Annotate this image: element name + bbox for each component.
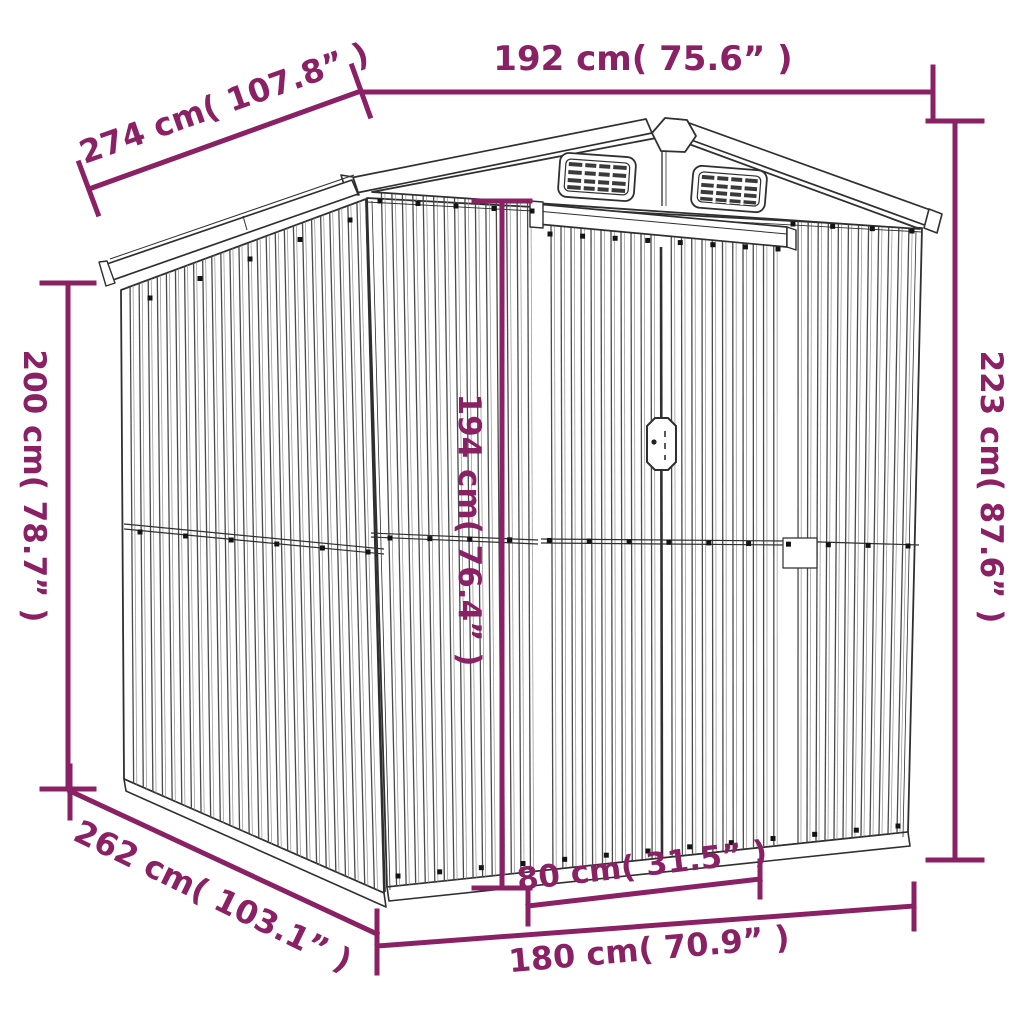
dim-label-height-right: 223 cm( 87.6” ) (973, 351, 1009, 624)
dimension-diagram: 192 cm( 75.6” ) 274 cm( 107.8” ) 200 cm(… (0, 0, 1024, 1024)
shed (99, 118, 942, 907)
dim-label-height-left: 200 cm( 78.7” ) (16, 350, 52, 623)
vent-right (690, 165, 767, 213)
roof-peak-cap (652, 118, 696, 152)
dim-label-width-top: 192 cm( 75.6” ) (493, 39, 792, 79)
vent-left (558, 152, 637, 201)
door-handle (647, 418, 676, 470)
dim-label-height-door: 194 cm( 76.4” ) (451, 394, 487, 667)
